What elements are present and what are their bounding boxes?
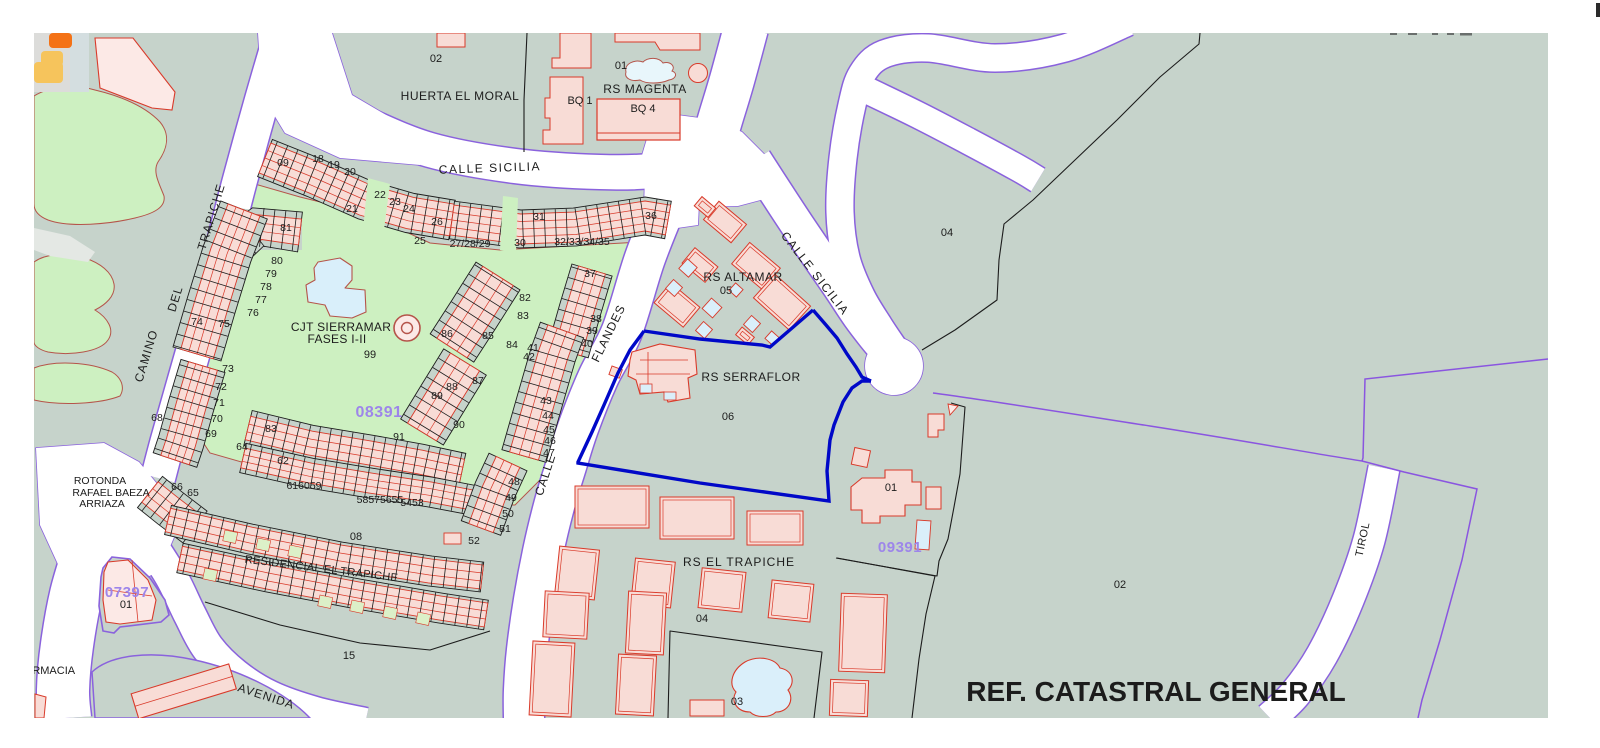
svg-text:73: 73 [222, 363, 234, 375]
svg-text:06: 06 [722, 411, 734, 423]
svg-text:09391: 09391 [878, 539, 922, 556]
svg-text:68: 68 [151, 412, 163, 424]
svg-text:58575655: 58575655 [357, 494, 404, 506]
svg-text:RS EL TRAPICHE: RS EL TRAPICHE [683, 555, 795, 569]
svg-text:BQ 4: BQ 4 [630, 103, 655, 115]
svg-text:84: 84 [506, 339, 518, 351]
svg-text:75: 75 [218, 318, 230, 330]
svg-text:50: 50 [502, 508, 514, 520]
svg-text:87: 87 [472, 375, 484, 387]
svg-text:02: 02 [430, 53, 442, 65]
svg-text:99: 99 [364, 349, 376, 361]
svg-text:HUERTA EL MORAL: HUERTA EL MORAL [401, 89, 520, 103]
svg-text:BQ 1: BQ 1 [567, 95, 592, 107]
svg-text:08391: 08391 [356, 404, 403, 421]
svg-text:RS ALTAMAR: RS ALTAMAR [703, 270, 782, 284]
svg-text:07397: 07397 [105, 584, 149, 601]
svg-text:ARRIAZA: ARRIAZA [79, 498, 125, 510]
svg-text:20: 20 [344, 166, 356, 178]
svg-text:04: 04 [941, 227, 953, 239]
svg-text:51: 51 [499, 523, 511, 535]
svg-text:52: 52 [468, 535, 480, 547]
svg-text:90: 90 [453, 419, 465, 431]
svg-text:79: 79 [265, 268, 277, 280]
svg-text:08: 08 [350, 531, 362, 543]
svg-text:78: 78 [260, 281, 272, 293]
svg-text:44: 44 [542, 410, 554, 422]
svg-text:616059: 616059 [286, 480, 321, 492]
svg-text:83: 83 [265, 423, 277, 435]
svg-text:01: 01 [615, 60, 627, 72]
svg-text:5453: 5453 [400, 497, 424, 509]
svg-text:38: 38 [590, 313, 602, 325]
svg-text:70: 70 [211, 413, 223, 425]
svg-text:30: 30 [514, 237, 526, 249]
svg-text:85: 85 [482, 330, 494, 342]
svg-text:42: 42 [523, 351, 535, 363]
svg-text:77: 77 [255, 294, 267, 306]
svg-text:62: 62 [277, 455, 289, 467]
svg-text:22: 22 [374, 189, 386, 201]
svg-text:40: 40 [581, 338, 593, 350]
svg-text:19: 19 [328, 159, 340, 171]
svg-text:49: 49 [505, 492, 517, 504]
svg-text:83: 83 [517, 310, 529, 322]
svg-text:25: 25 [414, 235, 426, 247]
svg-text:RS MAGENTA: RS MAGENTA [603, 82, 686, 96]
svg-text:FASES I-II: FASES I-II [307, 332, 366, 346]
svg-text:04: 04 [696, 613, 708, 625]
svg-text:01: 01 [885, 482, 897, 494]
svg-text:39: 39 [586, 325, 598, 337]
svg-text:21: 21 [346, 203, 358, 215]
svg-text:05: 05 [720, 285, 732, 297]
svg-text:69: 69 [205, 428, 217, 440]
svg-text:09: 09 [277, 157, 289, 169]
svg-text:36: 36 [645, 210, 657, 222]
svg-text:74: 74 [191, 316, 203, 328]
svg-text:47: 47 [543, 447, 555, 459]
svg-text:31: 31 [533, 211, 545, 223]
svg-text:86: 86 [441, 328, 453, 340]
svg-text:89: 89 [431, 390, 443, 402]
svg-text:66: 66 [171, 481, 183, 493]
svg-text:71: 71 [213, 397, 225, 409]
svg-text:88: 88 [446, 381, 458, 393]
svg-text:32/33/34/35: 32/33/34/35 [554, 236, 610, 248]
svg-text:43: 43 [540, 395, 552, 407]
svg-text:RS SERRAFLOR: RS SERRAFLOR [701, 370, 800, 384]
svg-text:46: 46 [544, 435, 556, 447]
svg-text:02: 02 [1114, 579, 1126, 591]
svg-text:48: 48 [508, 476, 520, 488]
svg-text:81: 81 [280, 222, 292, 234]
svg-text:REF. CATASTRAL GENERAL: REF. CATASTRAL GENERAL [966, 676, 1346, 707]
svg-text:24: 24 [403, 203, 415, 215]
svg-text:18: 18 [312, 153, 324, 165]
svg-text:91: 91 [393, 431, 405, 443]
svg-text:76: 76 [247, 307, 259, 319]
svg-text:64: 64 [236, 441, 248, 453]
svg-text:ROTONDA: ROTONDA [74, 475, 126, 487]
svg-text:37: 37 [584, 268, 596, 280]
svg-text:03: 03 [731, 696, 743, 708]
svg-text:82: 82 [519, 292, 531, 304]
svg-text:15: 15 [343, 650, 355, 662]
svg-text:80: 80 [271, 255, 283, 267]
svg-text:72: 72 [215, 381, 227, 393]
svg-text:65: 65 [187, 487, 199, 499]
svg-text:23: 23 [389, 196, 401, 208]
svg-text:26: 26 [431, 216, 443, 228]
svg-text:27/28/29: 27/28/29 [450, 238, 491, 250]
